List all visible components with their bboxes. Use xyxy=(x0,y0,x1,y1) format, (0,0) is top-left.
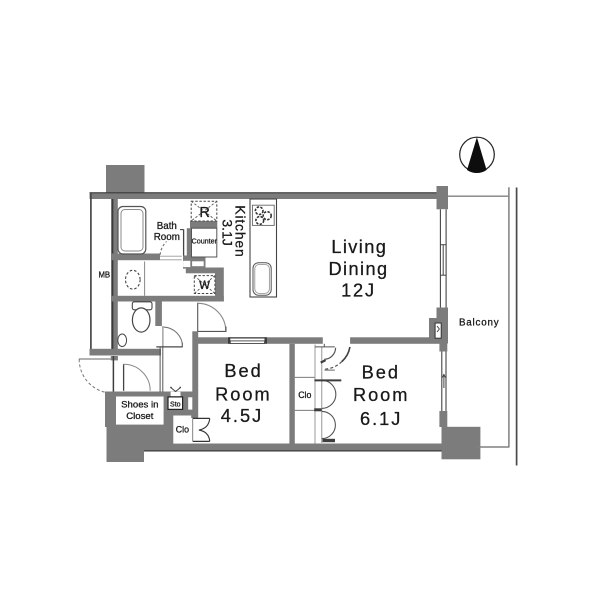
svg-text:Room: Room xyxy=(215,384,272,404)
svg-text:Dining: Dining xyxy=(329,259,389,279)
svg-text:W: W xyxy=(199,280,210,292)
svg-text:Counter: Counter xyxy=(192,236,218,245)
svg-text:12J: 12J xyxy=(341,281,376,301)
svg-text:Closet: Closet xyxy=(126,411,154,422)
svg-text:MB: MB xyxy=(98,271,110,280)
svg-text:Balcony: Balcony xyxy=(459,317,499,328)
svg-text:Living: Living xyxy=(331,237,387,257)
svg-text:Room: Room xyxy=(154,232,180,243)
svg-text:3.1J: 3.1J xyxy=(219,219,235,245)
svg-text:Bed: Bed xyxy=(224,361,262,381)
svg-text:Bath: Bath xyxy=(157,221,177,232)
svg-text:R: R xyxy=(199,205,209,221)
svg-text:Shoes in: Shoes in xyxy=(121,400,158,411)
svg-text:Clo: Clo xyxy=(298,390,311,400)
svg-text:4.5J: 4.5J xyxy=(221,406,263,426)
svg-text:6.1J: 6.1J xyxy=(360,409,402,429)
svg-text:Clo: Clo xyxy=(176,425,189,435)
svg-text:Bed: Bed xyxy=(362,362,400,382)
svg-text:Room: Room xyxy=(353,385,410,405)
svg-text:Sto: Sto xyxy=(170,401,181,408)
